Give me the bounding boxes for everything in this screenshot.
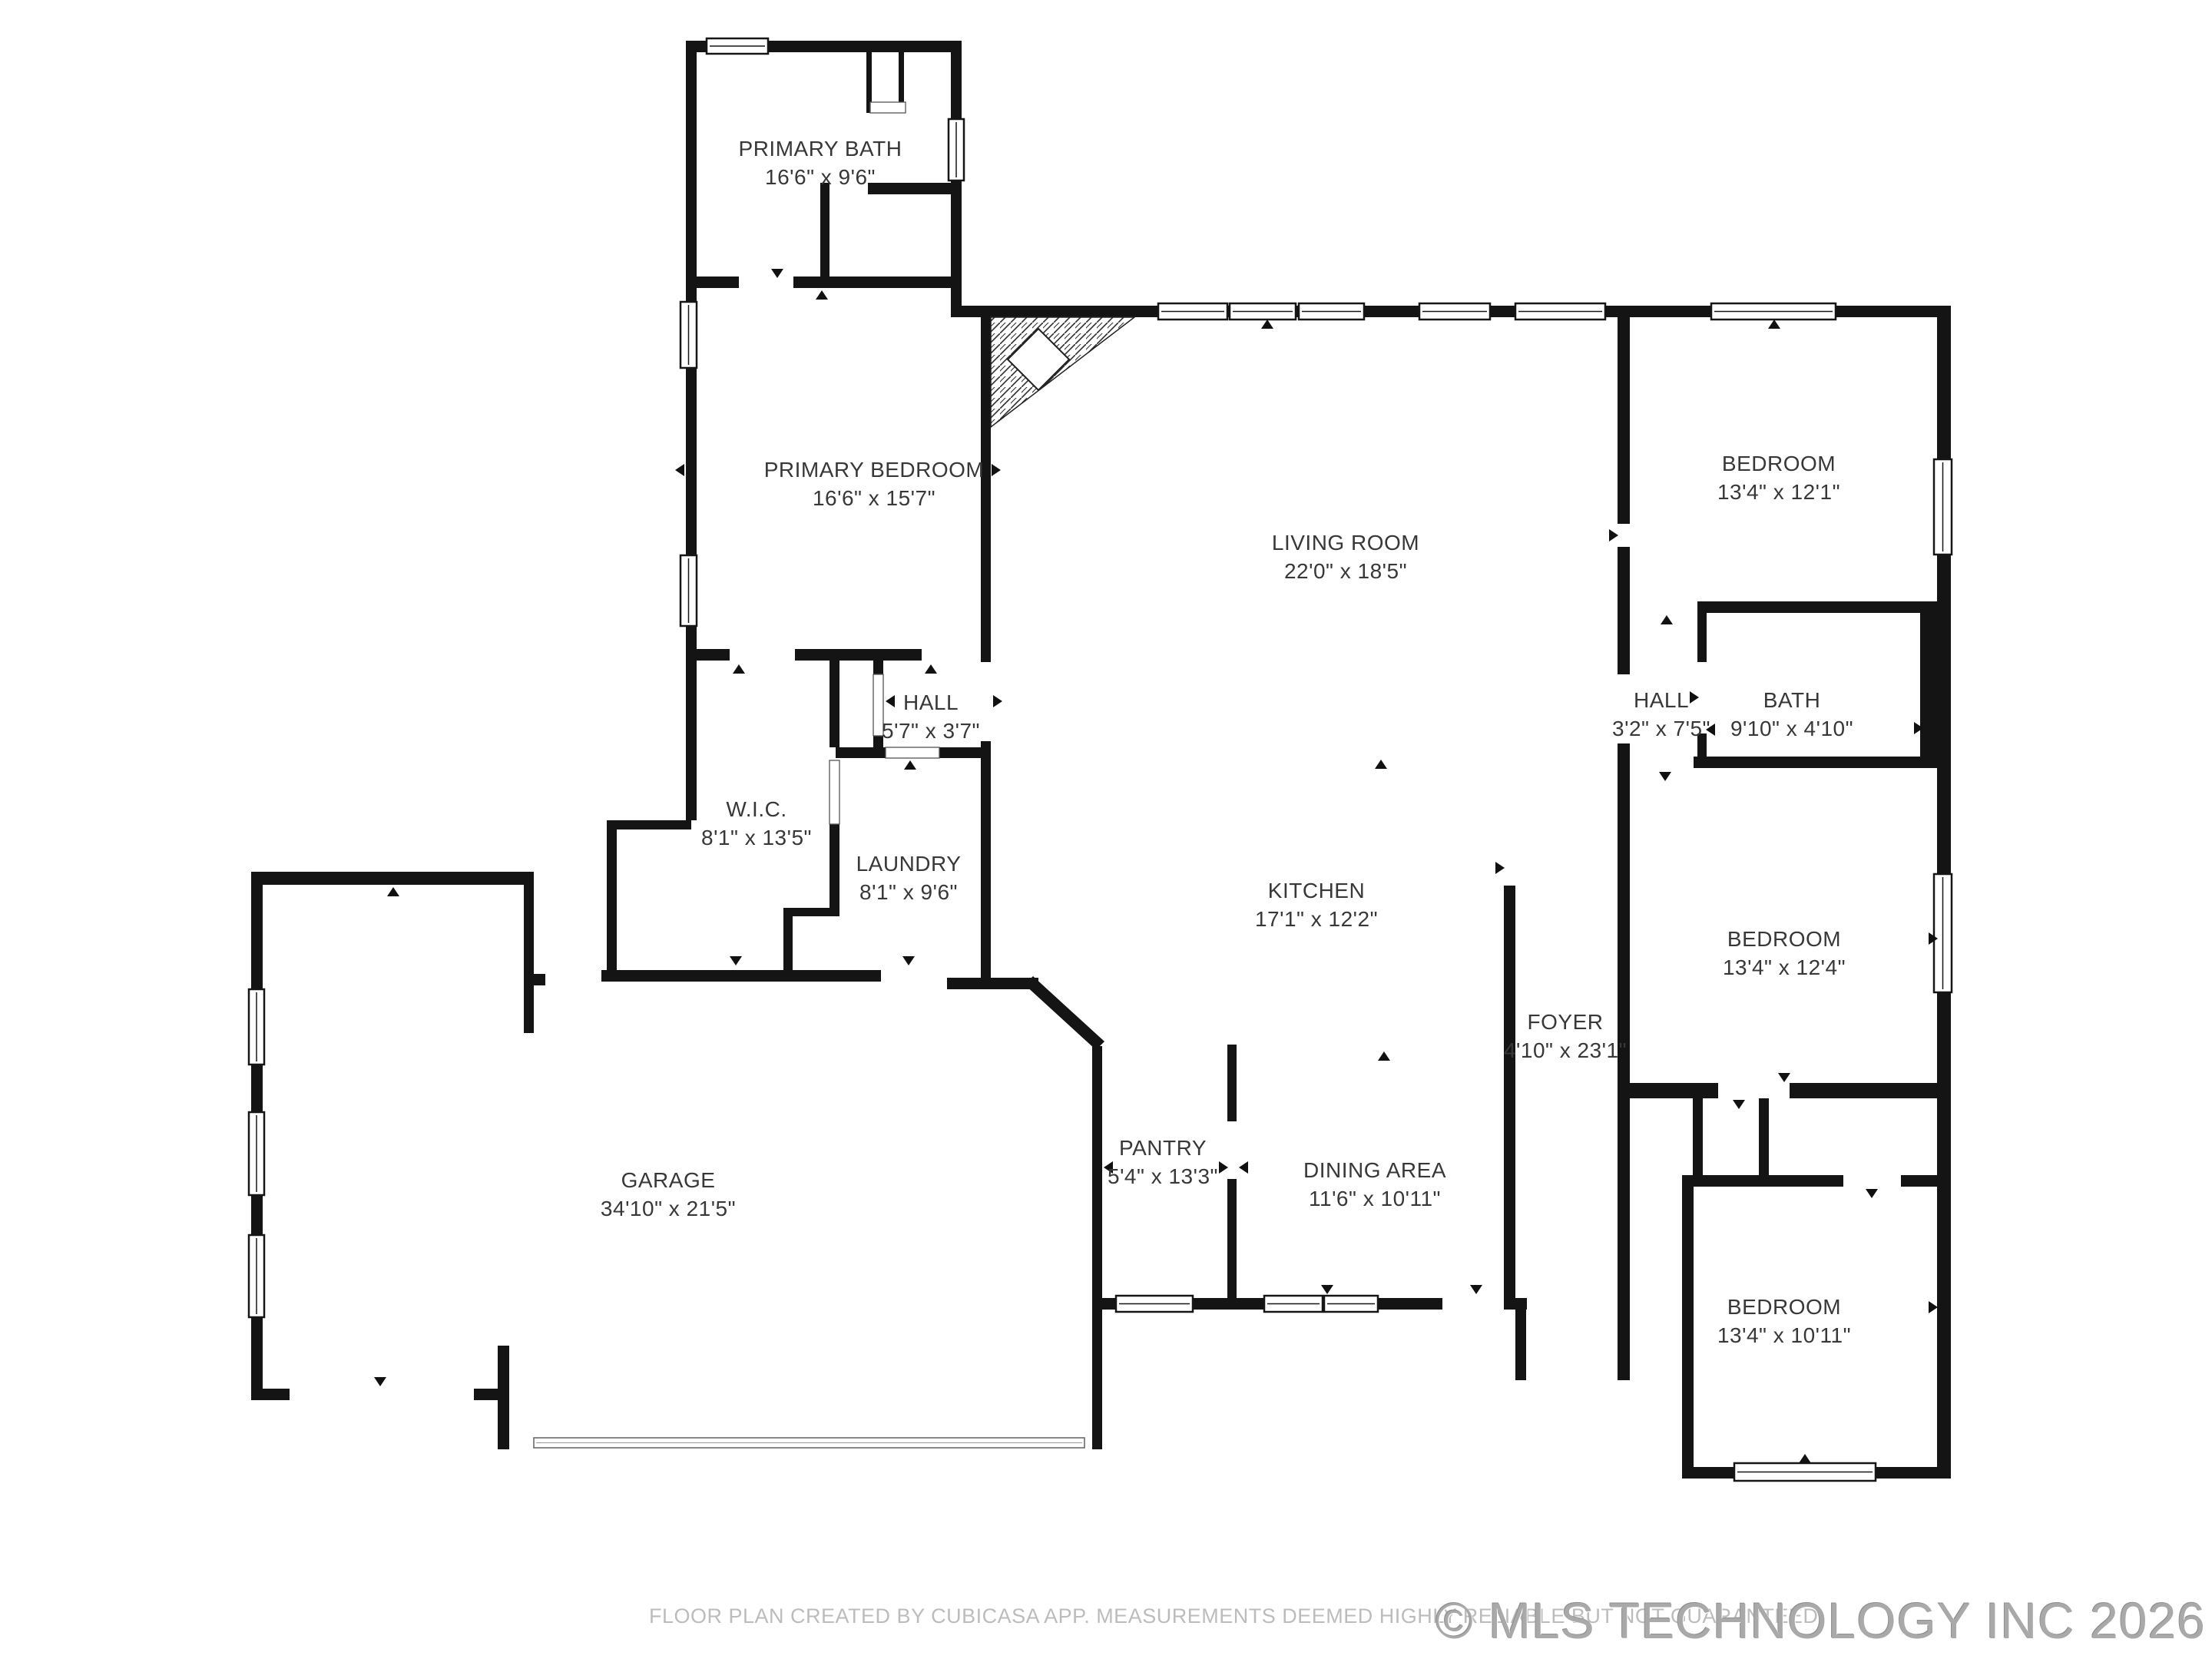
wall [868,183,962,194]
wall [1693,1098,1703,1175]
door-arrow [374,1377,386,1386]
wall [829,661,839,747]
wall [1901,1175,1951,1187]
wall [251,1389,290,1400]
wall [783,908,839,916]
door-arrow [1104,1161,1113,1174]
wall [253,872,534,885]
wall [1697,613,1707,662]
wall [795,649,922,661]
door-arrow [1706,724,1715,736]
wall [1618,743,1630,1380]
door-arrow [1378,1051,1390,1061]
wall [873,661,883,674]
door-arrow [816,290,828,300]
door-arrow [1321,1285,1333,1294]
door-arrow [1609,529,1618,541]
wall [1618,306,1630,524]
door-leaf [886,747,939,758]
wall [1790,1083,1951,1098]
wall [793,276,962,288]
wall [1618,547,1630,674]
wall [951,52,962,317]
wall [1920,613,1937,768]
wall [836,747,886,758]
door-arrow [902,956,915,965]
wall-diagonal [1025,976,1104,1050]
door-arrow [1799,1454,1811,1463]
wall [1227,1179,1237,1298]
door-arrow [730,956,742,965]
wall [947,978,1038,989]
door-leaf [829,760,839,824]
wall [1626,1083,1718,1098]
door-arrow [1778,1073,1790,1082]
door-arrow [993,695,1002,707]
door-arrow [1690,691,1699,704]
wall [899,52,904,102]
door-arrow [1470,1285,1482,1294]
door-arrow [1659,772,1671,781]
door-leaf [873,674,883,736]
door-arrow [1375,760,1387,769]
door-arrow [1261,320,1273,329]
wall [1697,601,1951,613]
door-arrow [771,269,783,278]
door-arrow [733,664,745,674]
door-arrow [1866,1189,1878,1198]
door-leaf [870,102,906,113]
wall [820,183,829,288]
wall [1092,1046,1102,1449]
door-arrow [1929,1301,1938,1313]
door-arrow [1495,862,1505,874]
wall [783,916,793,970]
wall [1694,757,1951,768]
wall [607,820,691,829]
wall [829,824,839,916]
wall [939,747,981,758]
wall [1759,1098,1769,1175]
wall [1682,1175,1694,1479]
floor-plan-page: PRIMARY BATH16'6" x 9'6" PRIMARY BEDROOM… [0,0,2212,1659]
mls-watermark: © MLS TECHNOLOGY INC 2026 [1435,1591,2206,1650]
wall [1504,886,1515,1310]
wall [686,276,739,288]
wall [524,885,534,1033]
door-arrow [992,464,1001,476]
wall [601,970,881,982]
wall [981,741,991,982]
floor-plan-drawing [0,0,2212,1659]
door-arrow [675,464,684,476]
wall [1227,1045,1237,1121]
wall [607,820,617,982]
wall [1515,1310,1526,1380]
wall [534,974,545,985]
door-arrow [925,664,937,674]
wall [873,736,883,747]
door-arrow [1661,615,1673,624]
wall [686,41,697,820]
door-arrow [886,695,895,707]
door-arrow [1733,1100,1745,1109]
wall [686,649,730,661]
door-arrow [1219,1161,1228,1174]
fireplace-hatch [991,317,1134,427]
wall [1682,1175,1843,1187]
door-arrow [387,887,399,896]
door-arrow [1768,320,1780,329]
door-arrow [1239,1161,1248,1174]
wall [981,317,991,662]
wall [498,1346,509,1449]
door-arrow [904,760,916,770]
